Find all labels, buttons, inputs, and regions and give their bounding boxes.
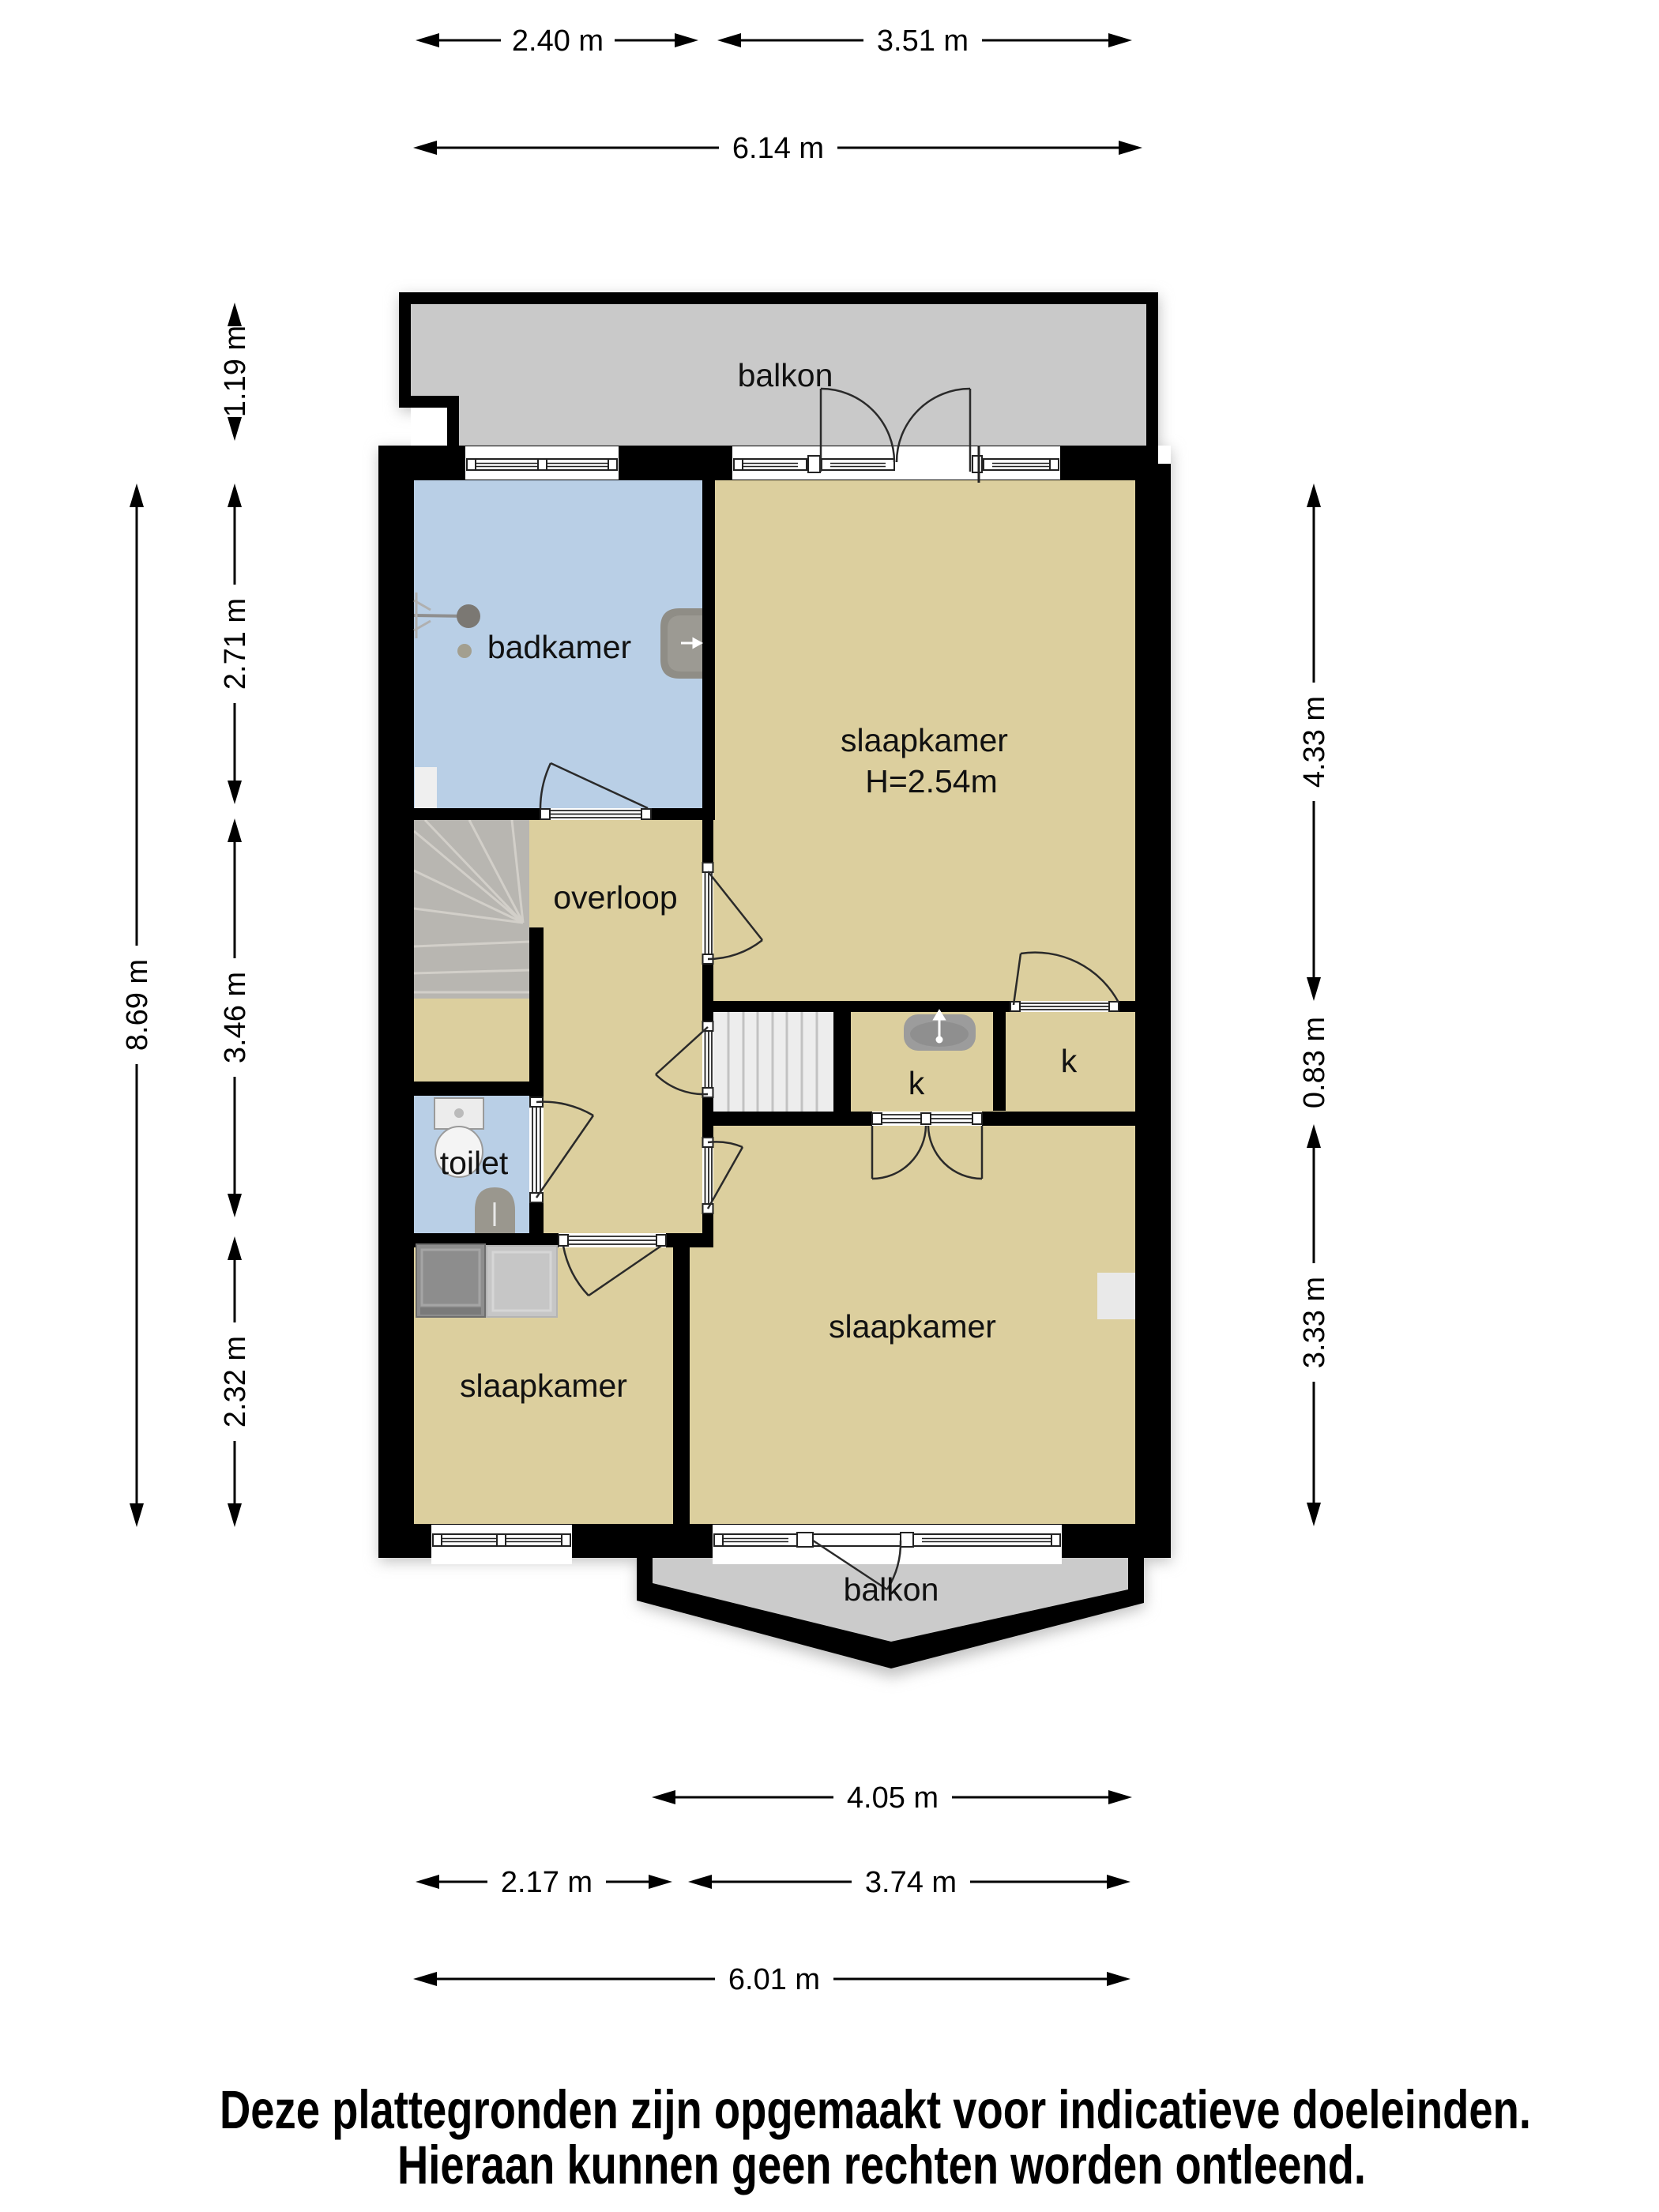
svg-text:8.69 m: 8.69 m xyxy=(121,959,154,1051)
svg-text:4.05 m: 4.05 m xyxy=(847,1781,939,1815)
svg-text:6.01 m: 6.01 m xyxy=(728,1963,820,1996)
svg-text:2.40 m: 2.40 m xyxy=(512,24,604,58)
svg-text:overloop: overloop xyxy=(553,879,677,916)
svg-text:badkamer: badkamer xyxy=(487,629,631,665)
svg-text:k: k xyxy=(908,1065,925,1101)
svg-text:6.14 m: 6.14 m xyxy=(732,132,824,165)
svg-text:Hieraan kunnen geen rechten wo: Hieraan kunnen geen rechten worden ontle… xyxy=(397,2135,1366,2195)
svg-text:H=2.54m: H=2.54m xyxy=(865,763,998,799)
svg-text:3.74 m: 3.74 m xyxy=(865,1866,957,1899)
svg-text:3.51 m: 3.51 m xyxy=(877,24,969,58)
svg-text:slaapkamer: slaapkamer xyxy=(460,1367,627,1404)
svg-text:0.83 m: 0.83 m xyxy=(1298,1017,1331,1108)
svg-text:2.32 m: 2.32 m xyxy=(219,1336,252,1428)
svg-text:2.17 m: 2.17 m xyxy=(501,1866,592,1899)
svg-text:2.71 m: 2.71 m xyxy=(219,598,252,690)
svg-text:4.33 m: 4.33 m xyxy=(1298,696,1331,788)
svg-text:3.46 m: 3.46 m xyxy=(219,972,252,1063)
svg-text:3.33 m: 3.33 m xyxy=(1298,1277,1331,1368)
svg-text:toilet: toilet xyxy=(440,1145,509,1181)
svg-text:Deze plattegronden zijn opgema: Deze plattegronden zijn opgemaakt voor i… xyxy=(220,2079,1531,2140)
svg-text:balkon: balkon xyxy=(738,357,833,393)
svg-text:1.19 m: 1.19 m xyxy=(219,325,252,417)
svg-text:balkon: balkon xyxy=(844,1571,939,1608)
svg-text:k: k xyxy=(1061,1043,1078,1079)
svg-text:slaapkamer: slaapkamer xyxy=(829,1308,996,1345)
svg-text:slaapkamer: slaapkamer xyxy=(841,722,1008,758)
